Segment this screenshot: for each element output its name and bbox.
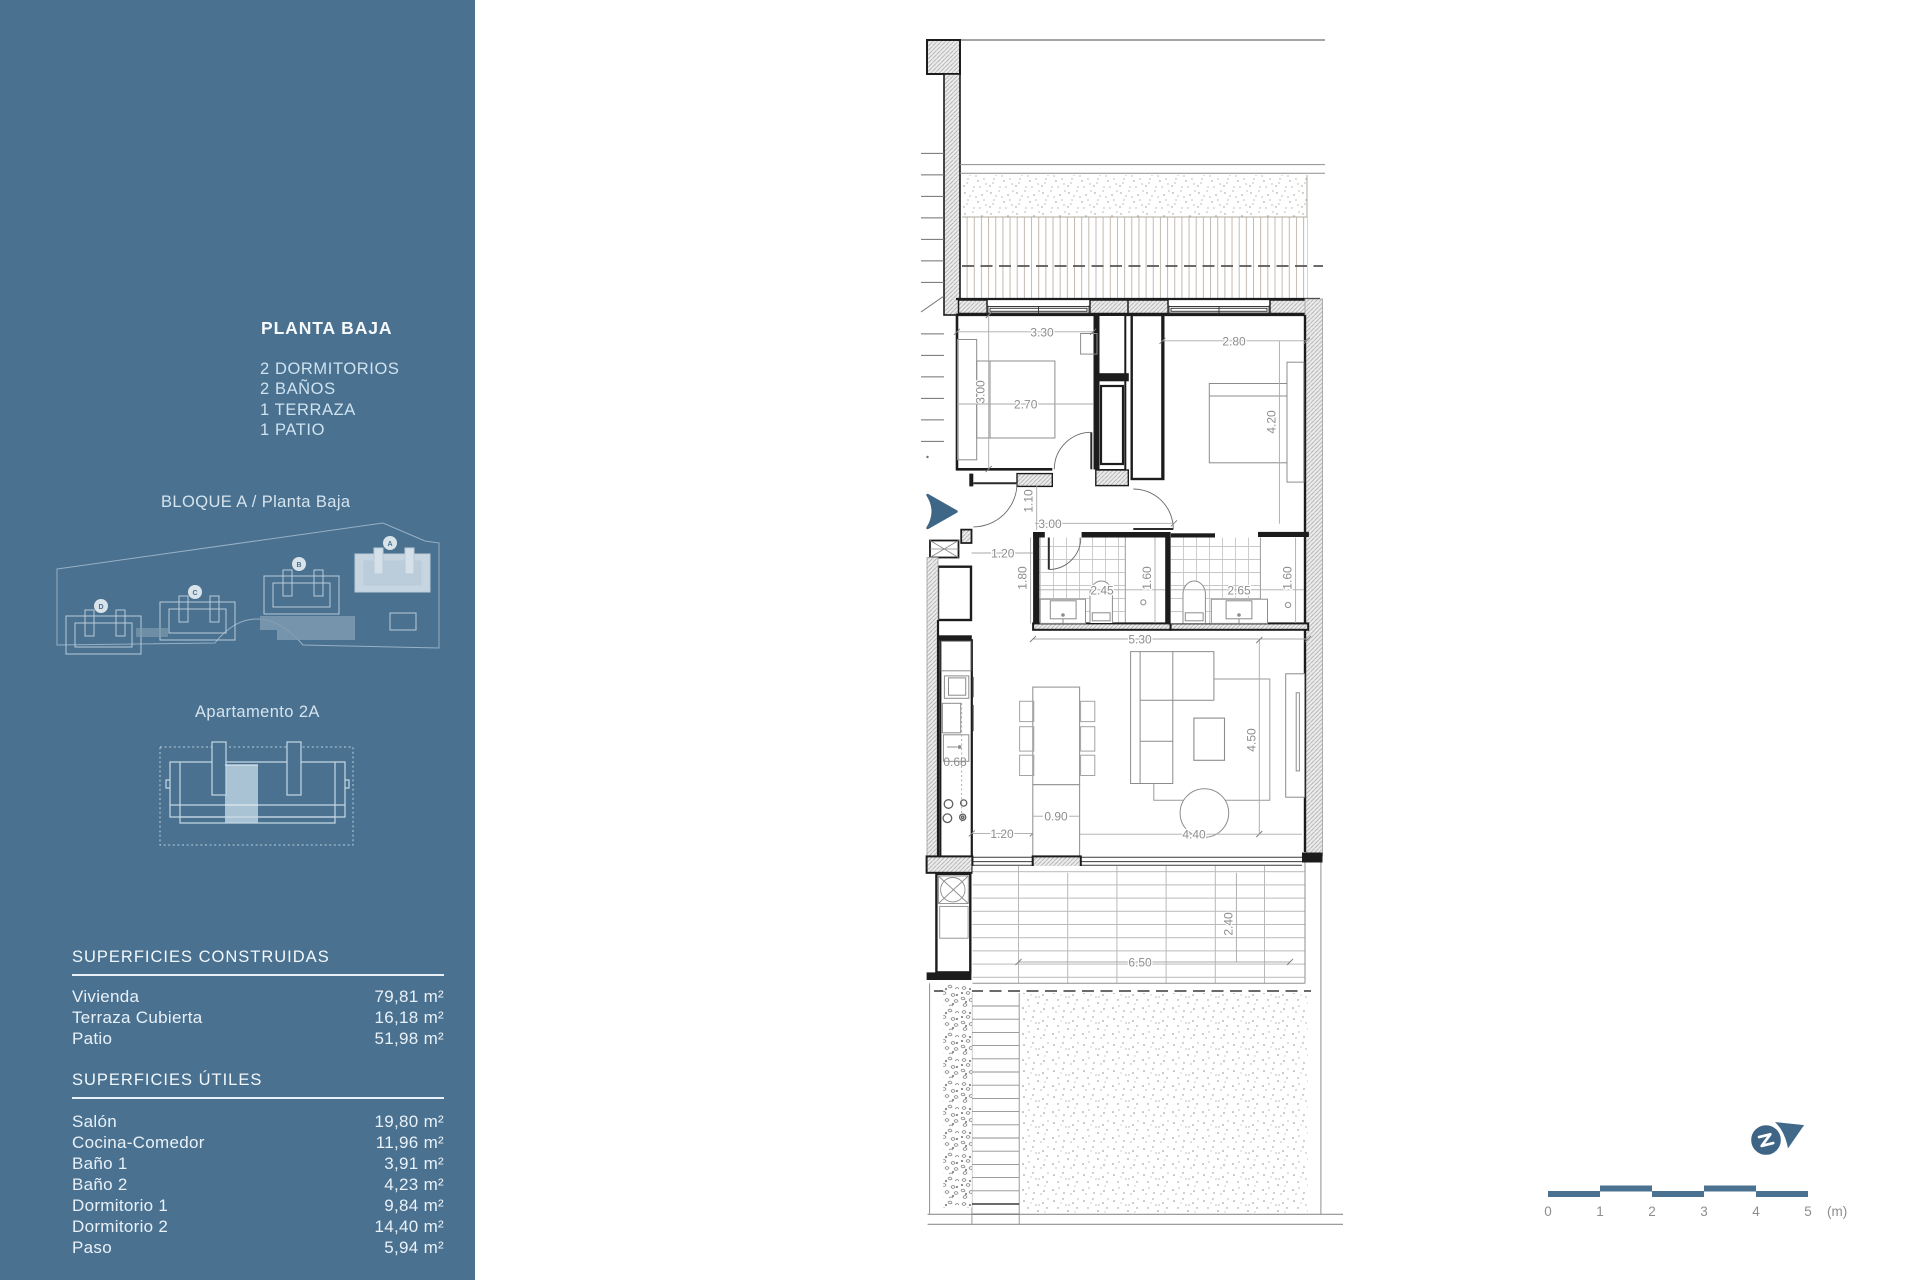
svg-text:0: 0 <box>1544 1204 1552 1219</box>
svg-text:3.30: 3.30 <box>1030 325 1054 339</box>
svg-text:4.40: 4.40 <box>1182 828 1206 842</box>
svg-text:1.10: 1.10 <box>1022 489 1036 513</box>
svg-text:1.80: 1.80 <box>1016 566 1030 590</box>
svg-text:3.00: 3.00 <box>974 380 988 404</box>
svg-text:(m): (m) <box>1827 1204 1847 1219</box>
svg-text:2.80: 2.80 <box>1222 334 1246 348</box>
svg-text:3: 3 <box>1700 1204 1708 1219</box>
svg-text:2: 2 <box>1648 1204 1656 1219</box>
svg-text:6.50: 6.50 <box>1128 956 1152 970</box>
svg-text:4.50: 4.50 <box>1244 728 1258 752</box>
svg-text:3.00: 3.00 <box>1038 517 1062 531</box>
svg-text:2.45: 2.45 <box>1090 583 1114 597</box>
svg-text:0.68: 0.68 <box>943 755 967 769</box>
svg-text:1.20: 1.20 <box>990 827 1014 841</box>
svg-text:2.40: 2.40 <box>1221 912 1235 936</box>
svg-text:1.60: 1.60 <box>1281 566 1295 590</box>
svg-text:1.60: 1.60 <box>1140 566 1154 590</box>
svg-text:1.20: 1.20 <box>991 547 1015 561</box>
svg-text:4: 4 <box>1752 1204 1760 1219</box>
svg-text:0.90: 0.90 <box>1044 810 1068 824</box>
svg-text:1: 1 <box>1596 1204 1604 1219</box>
svg-text:2.70: 2.70 <box>1014 398 1038 412</box>
svg-text:5.30: 5.30 <box>1128 633 1152 647</box>
svg-text:4.20: 4.20 <box>1264 410 1278 434</box>
svg-text:2.65: 2.65 <box>1227 583 1251 597</box>
svg-text:5: 5 <box>1804 1204 1812 1219</box>
